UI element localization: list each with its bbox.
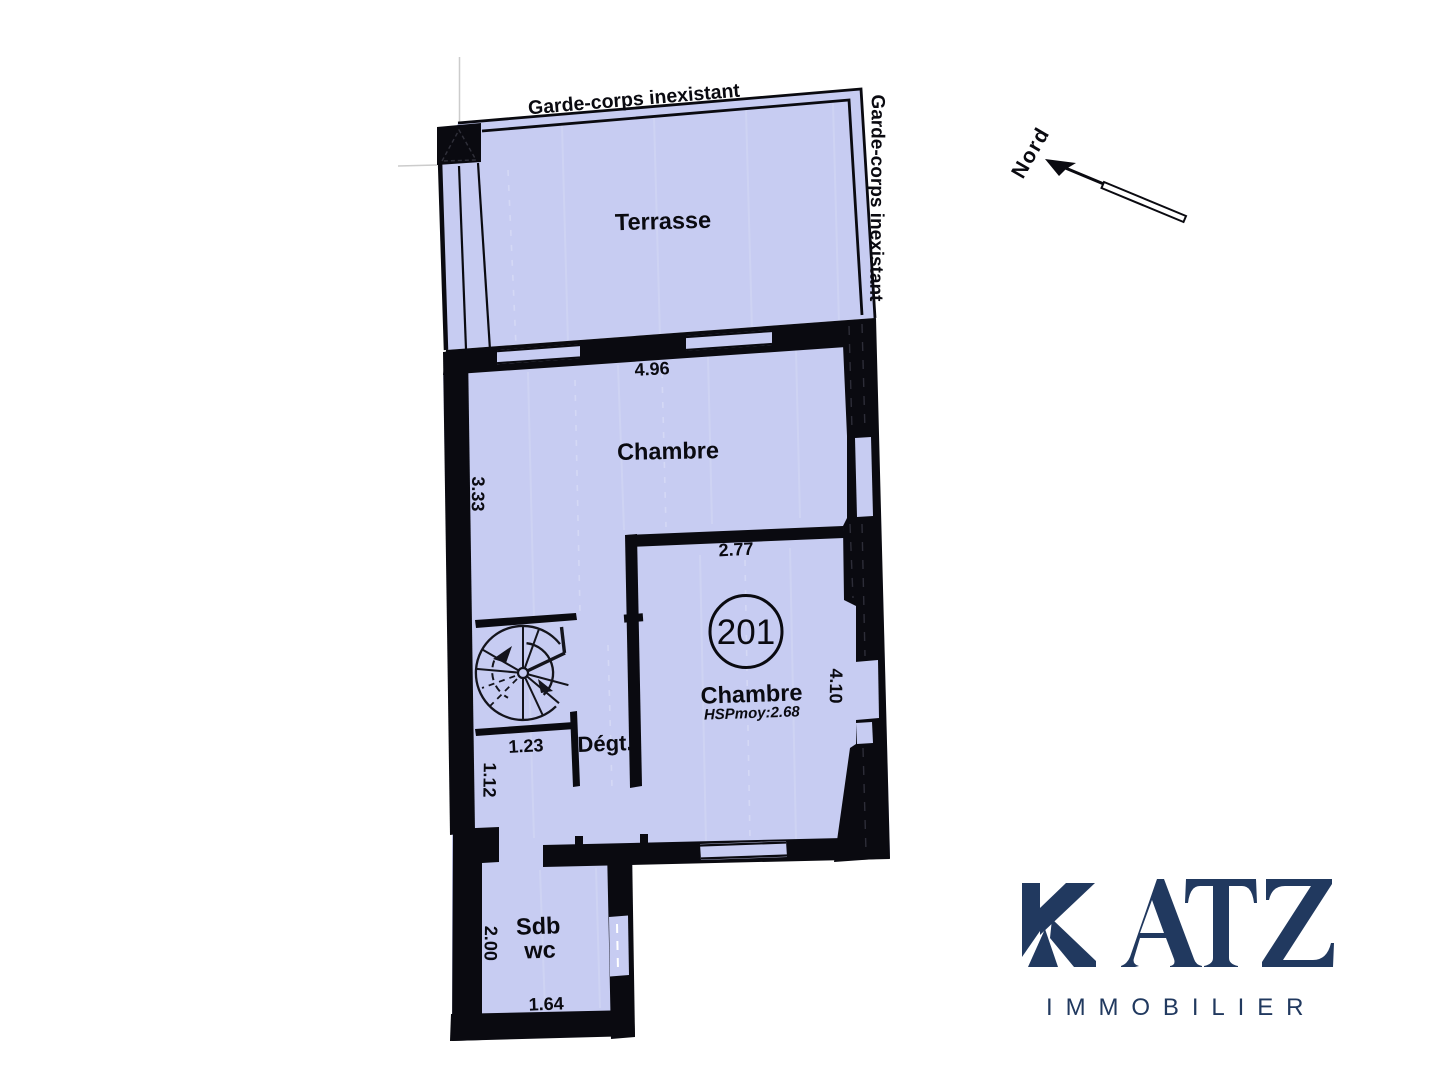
svg-text:3.33: 3.33 — [468, 476, 489, 511]
svg-text:Terrasse: Terrasse — [615, 207, 712, 236]
svg-text:Chambre: Chambre — [617, 437, 719, 465]
svg-text:IMMOBILIER: IMMOBILIER — [1046, 994, 1316, 1021]
svg-text:1.23: 1.23 — [508, 735, 544, 757]
svg-text:4.96: 4.96 — [634, 358, 670, 380]
svg-text:2.77: 2.77 — [718, 539, 754, 561]
svg-text:4.10: 4.10 — [826, 668, 847, 703]
svg-text:Dégt.: Dégt. — [577, 730, 633, 757]
svg-text:201: 201 — [717, 613, 775, 652]
svg-text:1.12: 1.12 — [479, 762, 500, 797]
svg-text:2.00: 2.00 — [480, 926, 501, 961]
svg-text:Garde-corps inexistant: Garde-corps inexistant — [865, 94, 888, 302]
svg-text:HSPmoy:2.68: HSPmoy:2.68 — [704, 703, 801, 723]
svg-text:1.64: 1.64 — [528, 993, 564, 1014]
svg-text:wc: wc — [523, 936, 556, 963]
